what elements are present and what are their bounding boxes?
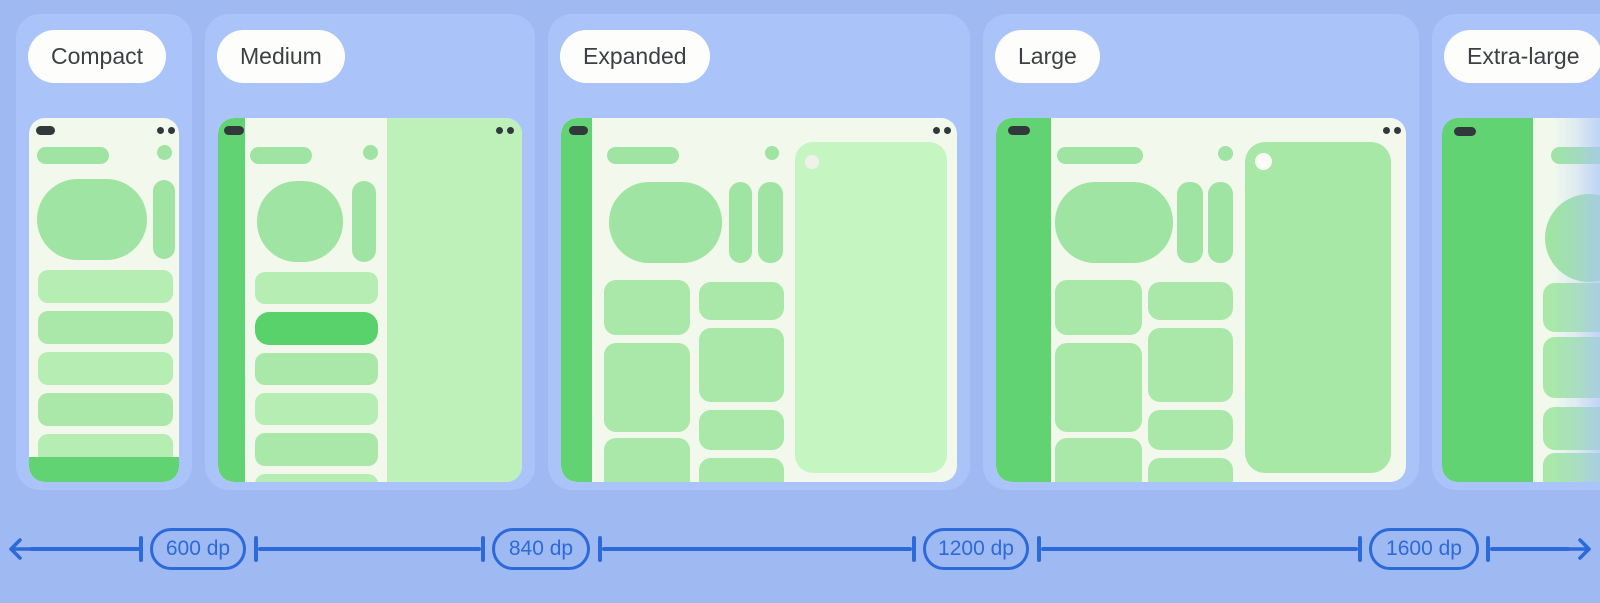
status-bar-pill (569, 126, 588, 135)
size-class-label: Expanded (560, 30, 710, 83)
list-item-shape (255, 433, 378, 466)
grid-card-shape (1543, 407, 1600, 450)
list-item-shape (255, 272, 378, 304)
grid-card-shape (699, 458, 784, 482)
size-class-label: Large (995, 30, 1100, 83)
nav-rail-shape (561, 118, 592, 482)
grid-card-shape (604, 438, 690, 482)
size-class-label: Compact (28, 30, 166, 83)
side-pill-shape (729, 182, 752, 263)
device-mockup-expanded (561, 118, 957, 482)
camera-cutout-icon (1255, 153, 1272, 170)
breakpoint-ruler: 600 dp 840 dp 1200 dp 1600 dp (0, 490, 1600, 603)
nav-rail-shape (218, 118, 245, 482)
search-bar-shape (607, 147, 679, 164)
grid-card-shape (699, 282, 784, 320)
size-class-label-text: Large (1018, 43, 1077, 70)
search-bar-shape (1057, 147, 1143, 164)
panel-large: Large (983, 14, 1419, 490)
hero-shape (257, 181, 343, 262)
device-mockup-medium (218, 118, 522, 482)
breakpoint-badge-text: 600 dp (166, 537, 230, 561)
ruler-line-segment (602, 547, 912, 551)
size-class-label-text: Extra-large (1467, 43, 1579, 70)
size-class-label: Medium (217, 30, 345, 83)
camera-cutout-icon (805, 155, 819, 169)
selected-list-item-shape (255, 312, 378, 345)
side-pill-shape (1177, 182, 1203, 263)
hero-shape (37, 179, 147, 260)
hero-shape (609, 182, 722, 263)
grid-card-shape (699, 410, 784, 450)
device-mockup-large (996, 118, 1406, 482)
panel-expanded: Expanded (548, 14, 970, 490)
breakpoint-badge-text: 840 dp (509, 537, 573, 561)
hero-shape (1055, 182, 1173, 263)
grid-card-shape (699, 328, 784, 402)
selected-grid-card-shape (1055, 343, 1142, 432)
device-mockup-extra-large (1442, 118, 1600, 482)
panel-medium: Medium (205, 14, 535, 490)
nav-rail-shape (1442, 118, 1533, 482)
side-pill-shape (758, 182, 783, 263)
grid-card-shape (1148, 328, 1233, 402)
list-item-shape (255, 393, 378, 425)
list-item-shape (38, 352, 173, 385)
avatar-shape (157, 145, 172, 160)
side-pill-shape (153, 180, 175, 259)
list-item-shape (38, 311, 173, 344)
camera-dot-icon (168, 127, 175, 134)
size-class-label: Extra-large (1444, 30, 1600, 83)
avatar-shape (765, 146, 779, 160)
status-bar-pill (36, 126, 55, 135)
ruler-line-segment (258, 547, 481, 551)
grid-card-shape (1148, 410, 1233, 450)
grid-card-shape (1543, 453, 1600, 482)
side-pill-shape (1208, 182, 1233, 263)
camera-dot-icon (933, 127, 940, 134)
camera-dot-icon (1383, 127, 1390, 134)
breakpoint-badge-text: 1600 dp (1386, 537, 1462, 561)
faded-content-area (1533, 118, 1600, 482)
detail-pane-shape (387, 118, 522, 482)
grid-card-shape (1543, 283, 1600, 332)
breakpoint-badge-1600: 1600 dp (1369, 528, 1479, 570)
panel-compact: Compact (16, 14, 192, 490)
grid-card-shape (604, 280, 690, 335)
search-bar-shape (250, 147, 312, 164)
ruler-line-segment (1041, 547, 1358, 551)
breakpoint-badge-840: 840 dp (492, 528, 590, 570)
status-bar-pill (1008, 126, 1030, 135)
camera-dot-icon (1394, 127, 1401, 134)
size-class-label-text: Medium (240, 43, 322, 70)
nav-rail-shape (996, 118, 1051, 482)
list-item-shape (255, 474, 378, 482)
grid-card-shape (1055, 280, 1142, 335)
arrow-right-icon (1566, 536, 1592, 562)
avatar-shape (363, 145, 378, 160)
size-class-panels: Compact Medium (16, 14, 1600, 490)
ruler-tick (139, 536, 143, 562)
detail-pane-shape (1245, 142, 1391, 473)
breakpoint-badge-1200: 1200 dp (923, 528, 1029, 570)
ruler-tick (912, 536, 916, 562)
list-item-shape (255, 353, 378, 385)
grid-card-shape (1148, 282, 1233, 320)
list-item-shape (38, 393, 173, 426)
list-item-shape (38, 270, 173, 303)
selected-grid-card-shape (604, 343, 690, 432)
bottom-bar-shape (29, 457, 179, 482)
camera-dot-icon (507, 127, 514, 134)
grid-card-shape (1148, 458, 1233, 482)
device-mockup-compact (29, 118, 179, 482)
camera-dot-icon (944, 127, 951, 134)
panel-extra-large: Extra-large (1432, 14, 1600, 490)
status-bar-pill (1454, 127, 1476, 136)
selected-grid-card-shape (1543, 337, 1600, 398)
avatar-shape (1218, 146, 1233, 161)
size-class-label-text: Compact (51, 43, 143, 70)
side-pill-shape (352, 181, 376, 262)
status-bar-pill (224, 126, 244, 135)
grid-card-shape (1055, 438, 1142, 482)
detail-pane-shape (795, 142, 947, 473)
search-bar-shape (37, 147, 109, 164)
ruler-line-segment (30, 547, 140, 551)
ruler-line-segment (1490, 547, 1570, 551)
search-bar-shape (1551, 147, 1600, 164)
camera-dot-icon (157, 127, 164, 134)
size-class-label-text: Expanded (583, 43, 687, 70)
breakpoint-badge-text: 1200 dp (938, 537, 1014, 561)
camera-dot-icon (496, 127, 503, 134)
ruler-tick (1358, 536, 1362, 562)
ruler-tick (481, 536, 485, 562)
breakpoint-badge-600: 600 dp (150, 528, 246, 570)
